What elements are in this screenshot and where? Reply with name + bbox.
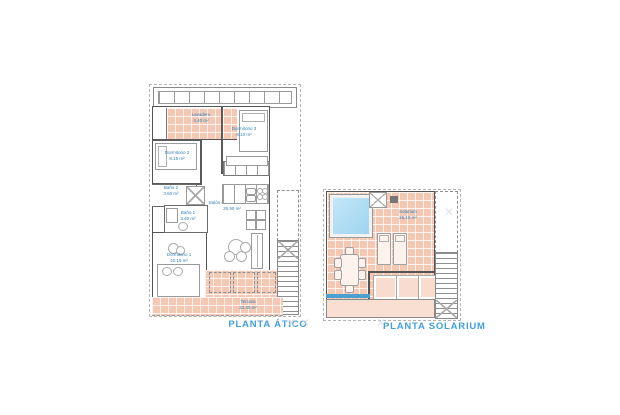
planter-panel (374, 276, 397, 299)
stairs-void-outline (277, 190, 299, 241)
watermark-cross: ✕ (376, 316, 386, 330)
dining-chair (246, 220, 256, 230)
room-area: 4.40 m² (193, 118, 208, 124)
atico-pergola-strip (153, 87, 297, 108)
stairs-cross (278, 241, 298, 259)
watermark-cross: ✕ (444, 205, 454, 219)
kitchen-island (226, 156, 268, 166)
sun-lounger (393, 233, 407, 265)
toilet-bano1 (178, 222, 188, 231)
sun-lounger (377, 233, 391, 265)
outdoor-chair (358, 258, 366, 268)
stairs-solarium (435, 252, 458, 319)
round-chair (240, 242, 251, 253)
chimney (390, 196, 398, 203)
room-label-terraza: Terraza 23.40 m² (227, 299, 269, 310)
bed-dormitorio-1 (157, 264, 200, 297)
kitchen-sink (246, 195, 256, 202)
lounger-pillow (395, 235, 405, 242)
kitchen-counter (222, 184, 269, 204)
room-label-bano-2: Baño 2 3.60 m² (156, 185, 186, 196)
room-area: 26.10 m² (399, 215, 417, 221)
outdoor-chair (345, 285, 354, 293)
room-label-dormitorio-3: Dormitorio 3 8.10 m² (224, 126, 264, 137)
stove-burner (262, 194, 268, 200)
floorplan-sheet: Lavadero 4.40 m² Dormitorio 3 8.10 m² Do… (0, 0, 620, 415)
room-label-solarium: Solarium 26.10 m² (387, 209, 429, 220)
room-area: 25.90 m² (223, 206, 241, 212)
dining-chair (256, 220, 266, 230)
pool (330, 195, 372, 237)
stairs-cross (436, 300, 457, 318)
plan-title-solarium: PLANTA SOLARIUM (383, 321, 483, 332)
sofa (251, 233, 263, 269)
pergola-dashed-square (209, 272, 231, 293)
glass-railing (326, 294, 370, 298)
outdoor-chair (334, 258, 342, 268)
outdoor-dining-table (340, 254, 359, 286)
room-area: 3.60 m² (163, 191, 178, 197)
lounger-pillow (379, 235, 389, 242)
shower-bano2 (186, 186, 205, 205)
wall-dorm2-right (200, 139, 202, 185)
planter-panel (397, 276, 420, 299)
room-area: 3.40 m² (180, 216, 195, 222)
bed-pillow (162, 267, 172, 276)
kitchen-sink (246, 188, 256, 195)
watermark-cross: ✕ (286, 316, 296, 330)
room-label-bano-1: Baño 1 3.40 m² (172, 210, 204, 221)
room-label-dormitorio-1: Dormitorio 1 10.15 m² (158, 252, 200, 263)
atico-terraza-upper (205, 270, 278, 297)
wall-dorm2-top (152, 139, 202, 141)
round-chair (224, 251, 235, 262)
skylight (369, 192, 387, 208)
dining-chair (246, 210, 256, 220)
stairs-void-outline (435, 191, 458, 253)
room-label-dormitorio-2: Dormitorio 2 8.15 m² (156, 150, 198, 161)
room-area: 10.15 m² (170, 258, 188, 264)
bed-pillow (173, 267, 183, 276)
outdoor-chair (345, 247, 354, 255)
watermark-cross: ✕ (300, 316, 310, 330)
room-area: 8.15 m² (169, 156, 184, 162)
room-area: 23.40 m² (239, 305, 257, 311)
pergola-slats (158, 91, 292, 104)
sofa-back (257, 235, 261, 267)
bed-pillow (242, 113, 265, 122)
pergola-dashed-square (257, 272, 276, 293)
room-area: 8.10 m² (236, 132, 251, 138)
outdoor-chair (334, 270, 342, 280)
dining-chair (256, 210, 266, 220)
outdoor-chair (358, 270, 366, 280)
pergola-dashed-square (233, 272, 255, 293)
